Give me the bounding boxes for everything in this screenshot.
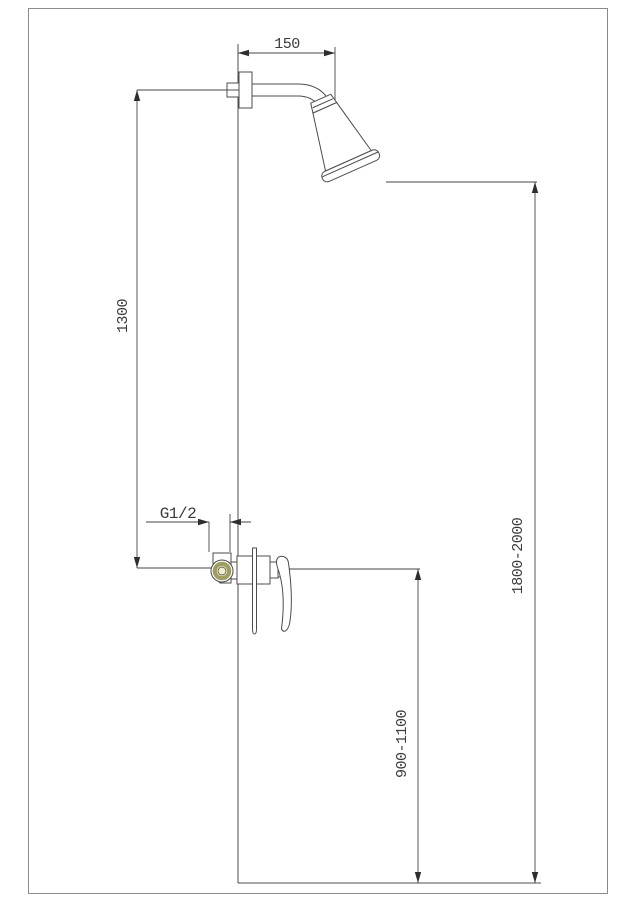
arrow-up (134, 90, 140, 101)
mixer-valve-assembly (211, 548, 291, 634)
trim-plate-rod (253, 548, 257, 634)
arrow-right (198, 519, 209, 525)
drawing-page: 150 1300 G1/2 900-1100 1800-2000 (0, 0, 637, 900)
arrow-left (230, 519, 241, 525)
arrow-down (134, 557, 140, 568)
dim-label-arm-length: 150 (274, 36, 300, 53)
fitting-center (218, 567, 226, 575)
dim-riser-height: 1300 (115, 90, 227, 568)
dim-label-riser-height: 1300 (115, 299, 132, 334)
arrow-left (238, 50, 249, 56)
shower-dimension-drawing: 150 1300 G1/2 900-1100 1800-2000 (0, 0, 637, 900)
arrow-up (415, 569, 421, 580)
dim-inlet-thread: G1/2 (146, 505, 251, 552)
arrow-right (324, 50, 335, 56)
brass-inlet-fitting (211, 560, 233, 582)
arrow-up (532, 182, 538, 193)
wall-flange (239, 72, 252, 108)
dim-mixer-height: 900-1100 (287, 569, 421, 883)
page-border-frame (29, 9, 608, 894)
dim-label-mixer-height: 900-1100 (394, 709, 411, 778)
dim-label-inlet-thread: G1/2 (160, 505, 196, 523)
arrow-down (532, 872, 538, 883)
shower-head (292, 86, 381, 183)
arrow-down (415, 872, 421, 883)
valve-lever-handle (276, 556, 291, 631)
dim-label-head-height: 1800-2000 (510, 517, 527, 594)
